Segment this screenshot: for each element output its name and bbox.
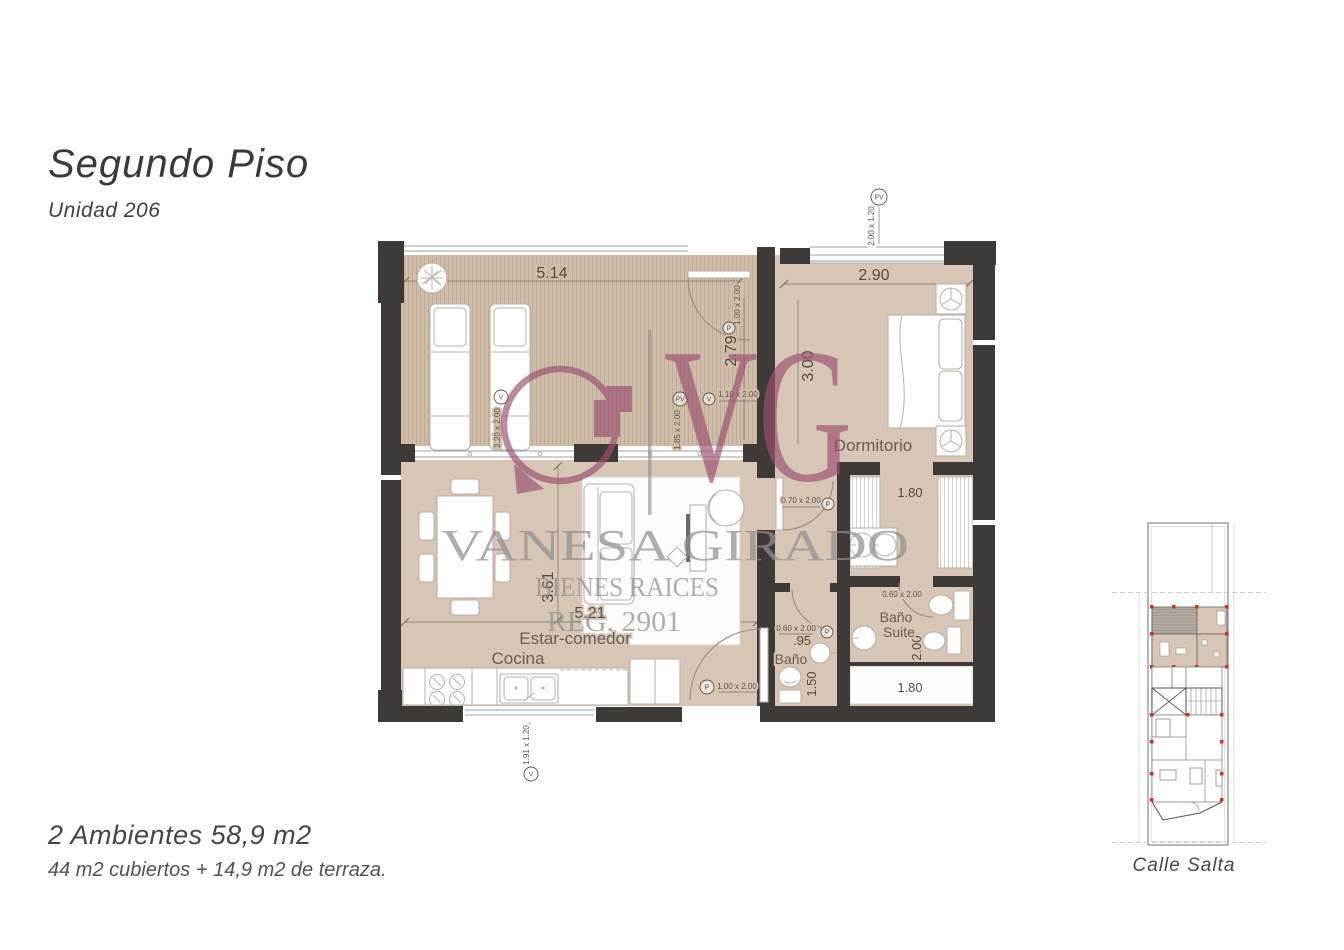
bed [888,315,965,428]
floorplan-drawing: 5.14 2.90 2.79 3.00 3.61 5.21 1.80 2.00 … [370,180,1030,805]
brand-registry: REG. 2901 [547,606,681,638]
room-label-kitchen: Cocina [492,649,545,668]
area-summary-line1: 2 Ambientes 58,9 m2 [48,820,387,851]
door-tag: P [825,630,830,637]
header: Segundo Piso Unidad 206 [48,142,309,223]
wardrobe [938,477,973,568]
fridge [630,659,680,704]
dim-bath-width: .95 [793,633,811,648]
building-core [1152,667,1222,715]
room-label-suite-2: Suite [883,624,915,640]
area-summary-line2: 44 m2 cubiertos + 14,9 m2 de terraza. [48,859,387,882]
fan-symbol-icon [936,426,966,456]
brand-monogram: VG [664,309,852,522]
room-label-suite-1: Baño [880,609,913,625]
terrace-window-size: 2.20 x 2.00 [493,408,502,448]
dim-ledge-width: 1.80 [897,680,922,695]
dim-terrace-width: 5.14 [536,265,567,282]
window-tag: V [529,772,534,779]
plant-icon [417,263,447,293]
kitchen-window-size: 1.91 x 1.20 [522,725,531,765]
suite-sink [852,626,876,650]
dim-dressing-width: 1.80 [897,485,922,500]
entry-door-leaf [760,628,768,702]
unit-subtitle: Unidad 206 [48,199,309,223]
floorplan-page: Segundo Piso Unidad 206 [0,0,1344,950]
street-label: Calle Salta [1133,855,1236,876]
dim-bedroom-width: 2.90 [858,267,889,284]
window-tag: PV [874,195,884,202]
bedroom-window-size: 2.00 x 1.20 [867,206,876,246]
area-summary: 2 Ambientes 58,9 m2 44 m2 cubiertos + 14… [48,820,387,882]
suite-door-size: 0.60 x 2.00 [882,590,922,599]
elevator-icon [1152,688,1186,715]
double-sink-icon [500,674,558,703]
fan-symbol-icon [936,284,966,314]
lounge-chair [430,304,470,450]
bath-door-size: 0.60 x 2.00 [776,624,816,633]
kitchen-window [463,706,596,721]
siteplan-drawing: Calle Salta [1095,508,1285,893]
unit-highlight [1150,605,1229,669]
terrace-door-leaf [688,271,750,278]
dim-bath-depth: 1.50 [804,671,819,696]
brand-tagline: BIENES RAICES [535,572,719,602]
terrace-rail [401,244,688,253]
window-tag: V [499,395,504,402]
room-label-bath: Baño [775,651,808,667]
brand-name: VANESA GIRADO [441,521,909,570]
stairs-icon [1186,688,1222,715]
door-tag: P [705,685,710,692]
logo-divider [648,330,652,515]
page-title: Segundo Piso [48,142,309,187]
entry-door-size: 1.00 x 2.00 [717,682,757,691]
